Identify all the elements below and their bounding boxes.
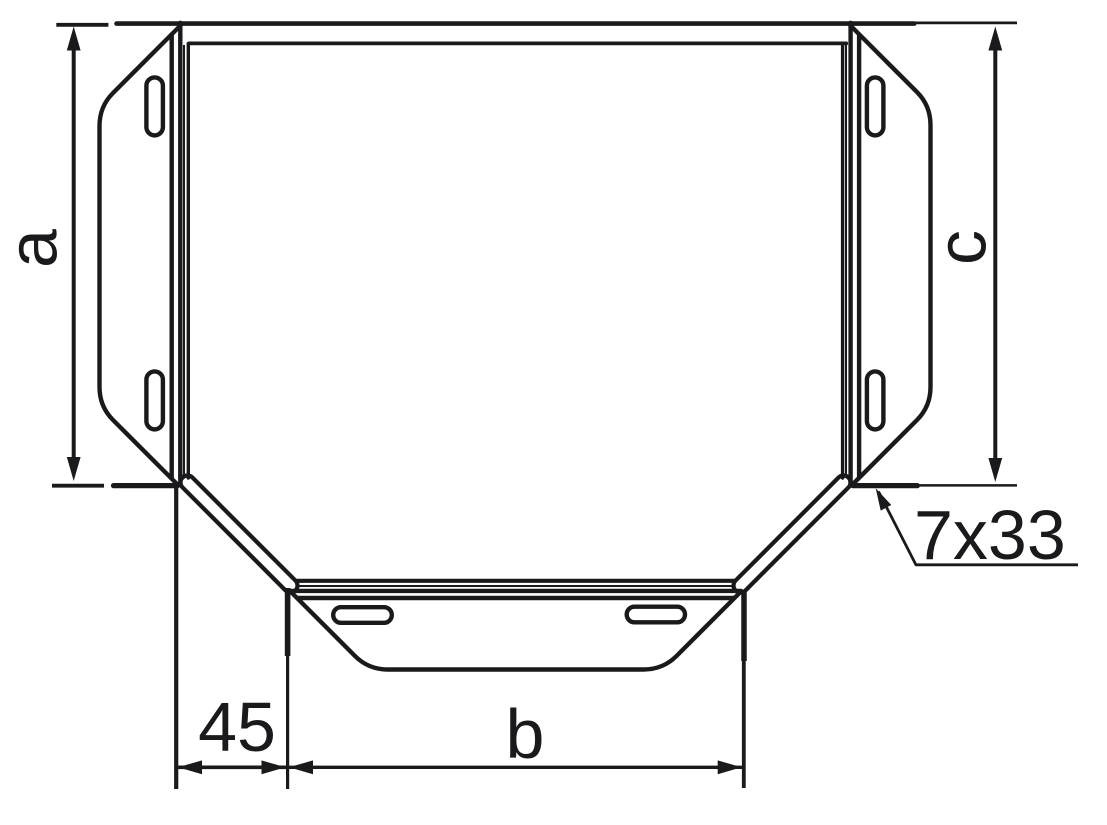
svg-text:7x33: 7x33 (914, 496, 1066, 574)
svg-text:45: 45 (198, 688, 276, 766)
svg-text:b: b (506, 695, 545, 773)
svg-text:a: a (0, 229, 72, 268)
svg-text:c: c (923, 230, 1001, 265)
